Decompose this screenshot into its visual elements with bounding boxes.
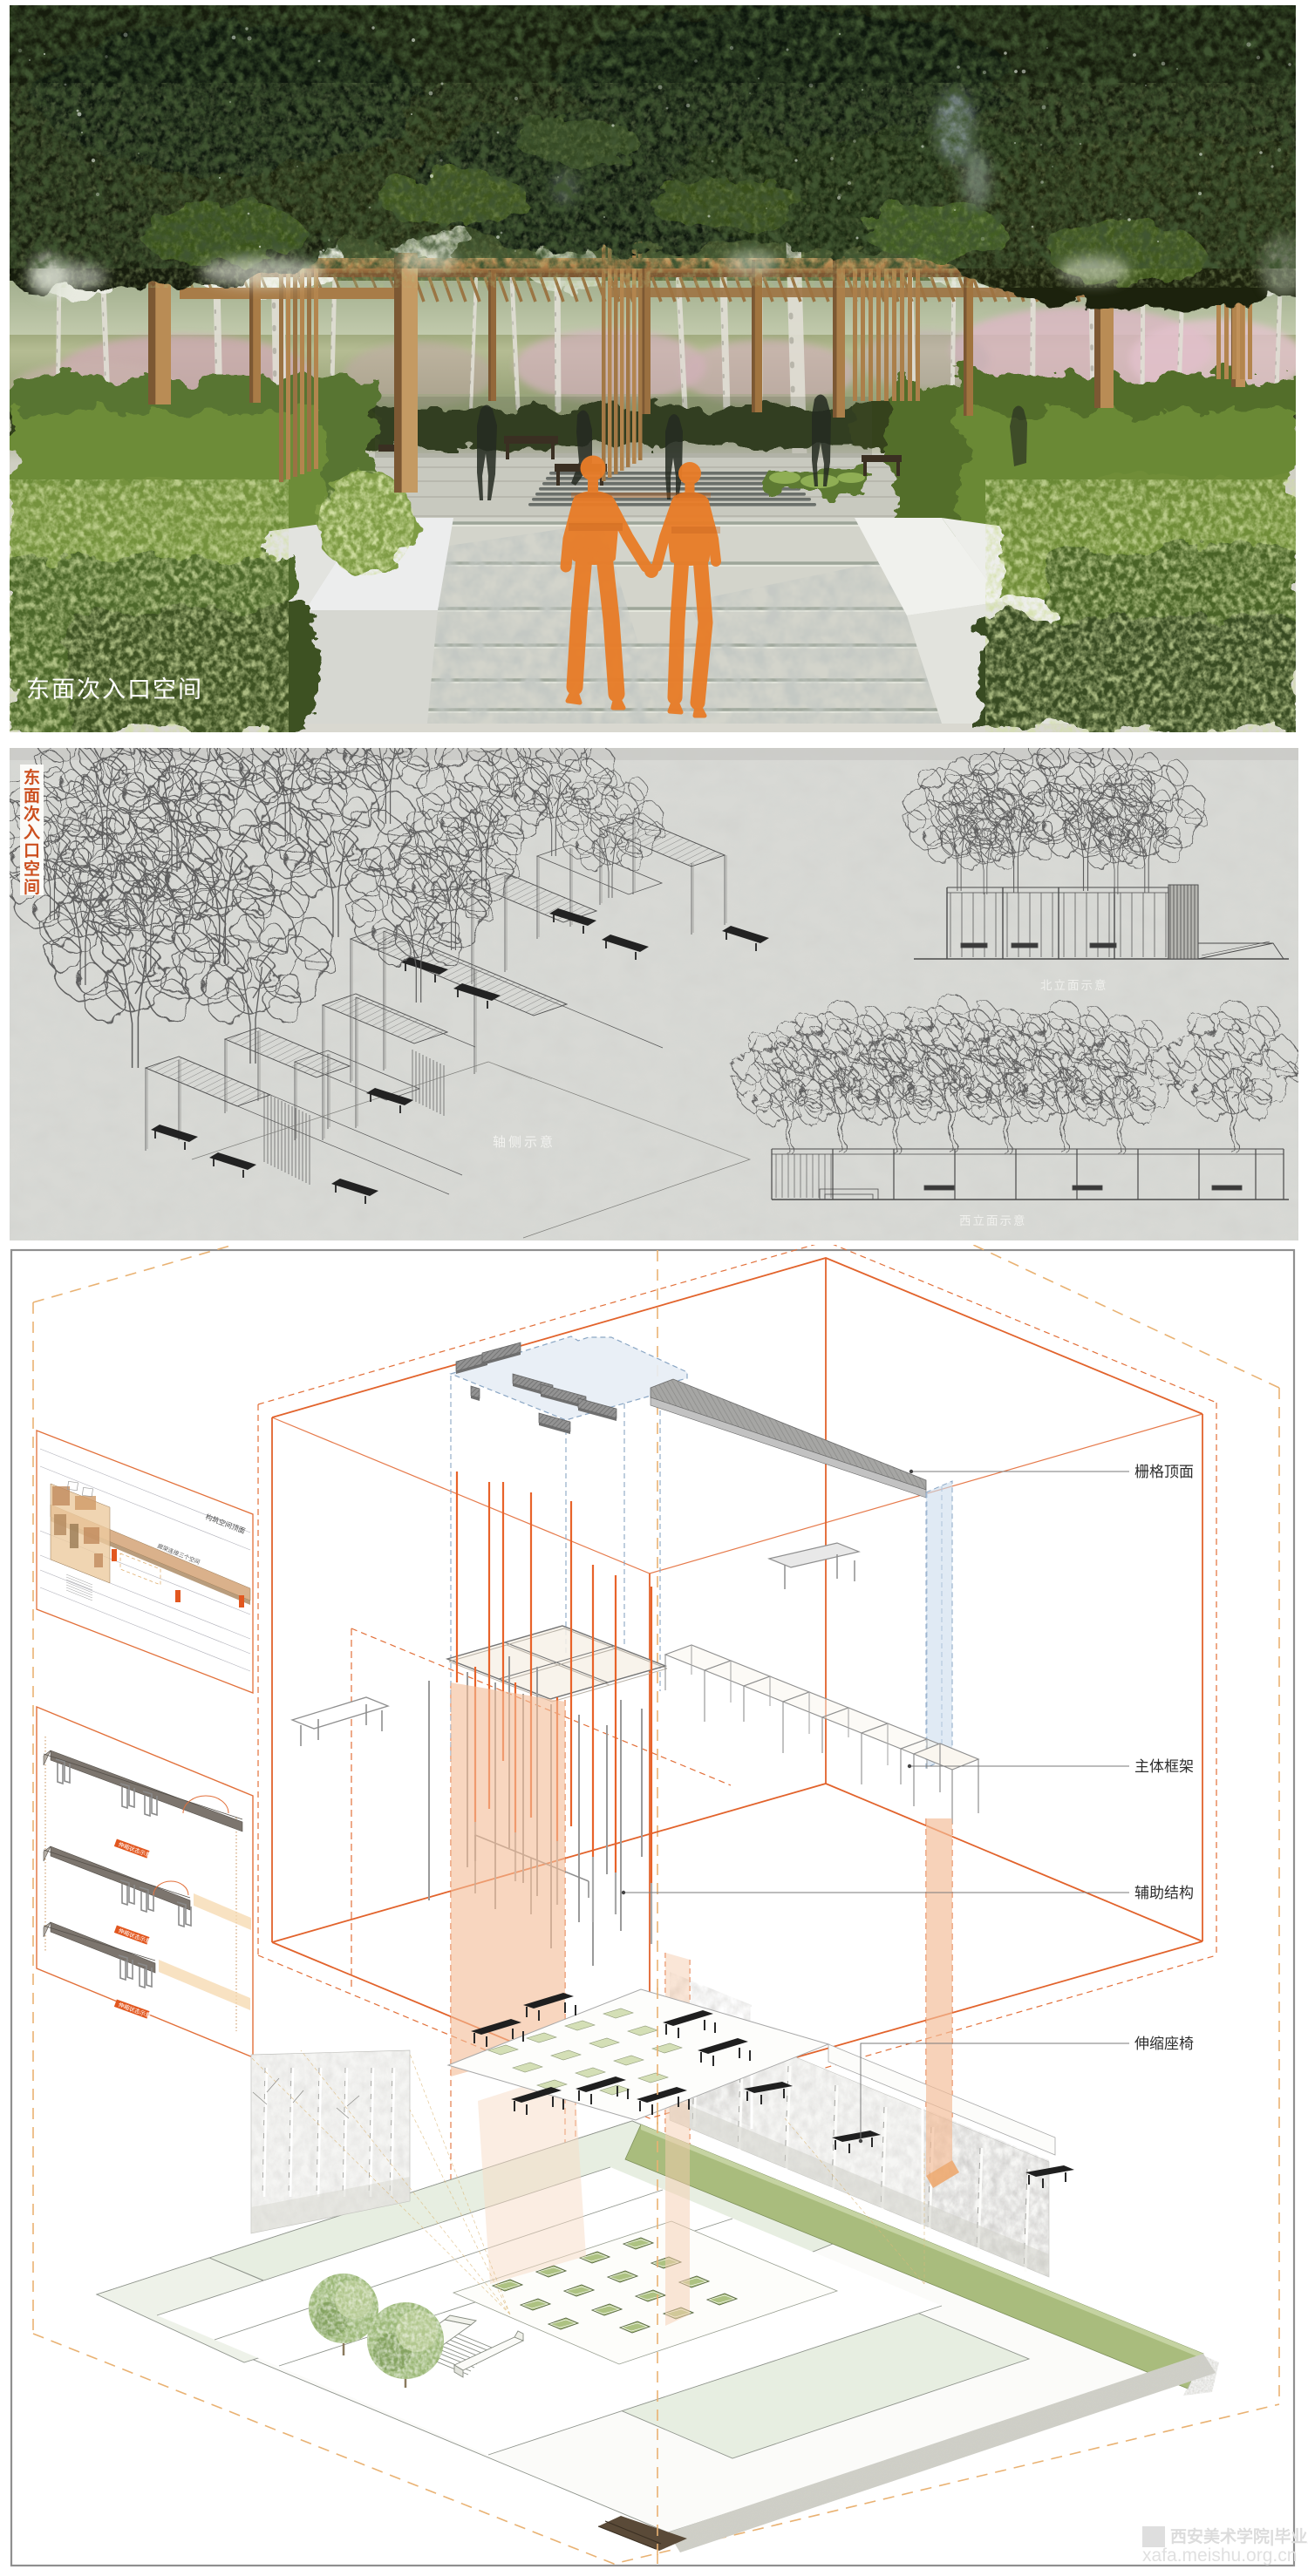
svg-text:次: 次	[24, 804, 40, 824]
svg-text:间: 间	[24, 878, 40, 897]
svg-text:辅助结构: 辅助结构	[1134, 1885, 1194, 1901]
svg-text:伸缩座椅: 伸缩座椅	[1134, 2036, 1194, 2052]
svg-text:栅格顶面: 栅格顶面	[1134, 1464, 1194, 1480]
svg-text:西安美术学院|毕业展: 西安美术学院|毕业展	[1170, 2526, 1308, 2546]
svg-text:空: 空	[24, 859, 40, 879]
svg-text:东面次入口空间: 东面次入口空间	[26, 676, 203, 703]
svg-text:主体框架: 主体框架	[1134, 1758, 1194, 1775]
svg-text:xafa.meishu.org.cn: xafa.meishu.org.cn	[1142, 2545, 1297, 2566]
svg-text:口: 口	[24, 842, 40, 860]
svg-text:面: 面	[24, 787, 40, 805]
svg-text:轴侧示意: 轴侧示意	[493, 1134, 555, 1150]
svg-text:北立面示意: 北立面示意	[1040, 978, 1108, 992]
svg-text:东: 东	[24, 767, 40, 787]
svg-text:入: 入	[24, 823, 40, 842]
svg-text:西立面示意: 西立面示意	[959, 1213, 1027, 1227]
